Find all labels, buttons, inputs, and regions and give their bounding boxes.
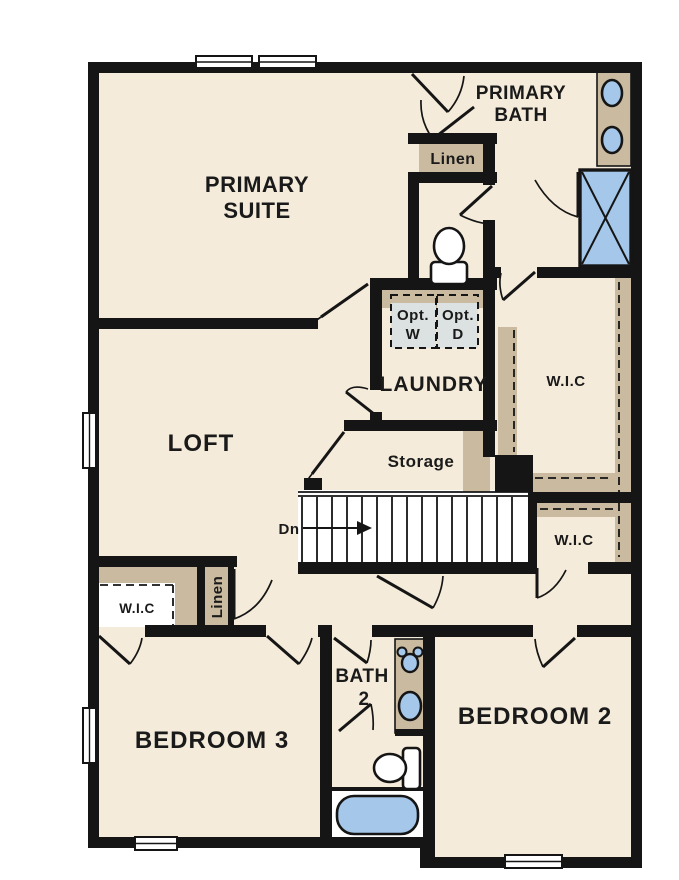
label-bath2-2: 2 <box>358 689 369 710</box>
label-down: Dn <box>279 521 300 538</box>
window <box>259 56 316 68</box>
primary-toilet <box>431 228 467 284</box>
bath2-sink <box>399 692 421 720</box>
label-opt-dryer-2: D <box>452 326 463 343</box>
wic3-shelf-right <box>175 583 197 627</box>
floorplan-page: PRIMARY SUITE PRIMARY BATH Linen Opt. W … <box>0 0 679 880</box>
label-laundry: LAUNDRY <box>380 373 489 396</box>
label-bath2-1: BATH <box>335 666 388 687</box>
label-linen-primary: Linen <box>430 151 475 168</box>
window <box>135 837 177 850</box>
label-storage: Storage <box>388 452 455 471</box>
wic3-shelf-top <box>98 567 197 583</box>
label-primary-suite-2: SUITE <box>223 198 290 223</box>
wic-shelf-bottom <box>533 473 615 492</box>
window <box>83 413 96 468</box>
label-wic-primary: W.I.C <box>546 373 585 390</box>
wic-shelf-right <box>615 275 631 562</box>
floor-plan: PRIMARY SUITE PRIMARY BATH Linen Opt. W … <box>0 0 679 880</box>
label-primary-suite-1: PRIMARY <box>205 172 309 197</box>
label-loft: LOFT <box>168 430 235 457</box>
label-wic-bedroom3: W.I.C <box>119 601 155 616</box>
primary-shower <box>580 170 631 266</box>
label-opt-washer-2: W <box>406 326 421 343</box>
window <box>196 56 252 68</box>
window <box>83 708 96 763</box>
label-opt-dryer-1: Opt. <box>442 307 474 324</box>
label-linen-hall: Linen <box>209 576 226 619</box>
wic2-shelf <box>537 501 615 517</box>
label-bedroom3: BEDROOM 3 <box>135 727 289 754</box>
label-bedroom2: BEDROOM 2 <box>458 703 612 730</box>
primary-sink-1 <box>602 80 622 106</box>
bath2-tub <box>337 796 418 834</box>
label-primary-bath-1: PRIMARY <box>476 83 566 104</box>
label-opt-washer-1: Opt. <box>397 307 429 324</box>
label-primary-bath-2: BATH <box>494 105 547 126</box>
primary-sink-2 <box>602 127 622 153</box>
window <box>505 855 562 868</box>
label-wic-hall: W.I.C <box>554 532 593 549</box>
